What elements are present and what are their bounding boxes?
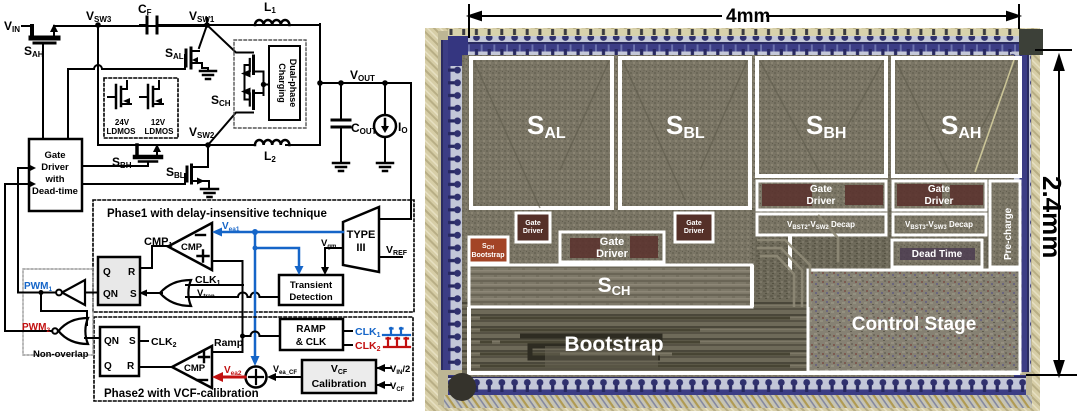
svg-text:Bootstrap: Bootstrap: [564, 333, 663, 356]
svg-text:Pre-charge: Pre-charge: [1003, 207, 1014, 260]
svg-text:S: S: [130, 289, 137, 300]
svg-text:Vgm: Vgm: [321, 238, 336, 250]
svg-text:CMP: CMP: [181, 242, 203, 253]
svg-text:Ramp: Ramp: [214, 337, 243, 349]
svg-text:SBH: SBH: [112, 155, 132, 170]
svg-text:LDMOS: LDMOS: [107, 127, 137, 136]
svg-text:PWM2: PWM2: [22, 322, 50, 334]
svg-text:QN: QN: [104, 336, 119, 347]
svg-text:Q: Q: [104, 361, 112, 372]
svg-text:VIN/2: VIN/2: [390, 364, 410, 376]
svg-text:Q: Q: [103, 267, 111, 278]
svg-text:& CLK: & CLK: [296, 337, 327, 348]
svg-text:Gate: Gate: [600, 236, 624, 248]
svg-text:Gate: Gate: [525, 220, 541, 227]
svg-text:Gate: Gate: [810, 184, 833, 195]
svg-text:Gate: Gate: [44, 150, 65, 161]
svg-text:SCH: SCH: [482, 243, 494, 251]
svg-text:VREF: VREF: [386, 244, 408, 257]
svg-text:IO: IO: [398, 120, 408, 135]
svg-text:L1: L1: [264, 0, 276, 15]
svg-text:Driver: Driver: [596, 248, 629, 260]
svg-text:Charging: Charging: [277, 63, 287, 103]
svg-text:Driver: Driver: [684, 228, 705, 235]
svg-text:Gate: Gate: [686, 220, 702, 227]
svg-text:QN: QN: [103, 289, 118, 300]
svg-text:SBL: SBL: [166, 165, 185, 180]
svg-text:LDMOS: LDMOS: [145, 127, 175, 136]
svg-text:Driver: Driver: [807, 196, 836, 207]
svg-text:PWM1: PWM1: [24, 281, 52, 293]
svg-text:VIN: VIN: [4, 19, 20, 34]
svg-text:SAL: SAL: [165, 46, 184, 61]
svg-text:Vea_CF: Vea_CF: [273, 364, 297, 376]
svg-text:L2: L2: [264, 149, 276, 164]
svg-text:TYPE: TYPE: [347, 229, 376, 241]
svg-text:VSW3: VSW3: [86, 9, 112, 24]
svg-text:VOUT: VOUT: [350, 68, 375, 83]
svg-text:Non-overlap: Non-overlap: [33, 349, 89, 360]
svg-text:SCH: SCH: [211, 93, 231, 108]
svg-text:VSW1: VSW1: [189, 9, 215, 24]
svg-text:Control Stage: Control Stage: [852, 314, 977, 335]
svg-text:Dead Time: Dead Time: [912, 249, 963, 260]
svg-text:CLK2: CLK2: [355, 340, 381, 353]
svg-text:Driver: Driver: [925, 196, 954, 207]
svg-text:2.4mm: 2.4mm: [1037, 176, 1067, 258]
svg-text:4mm: 4mm: [726, 6, 770, 27]
svg-text:R: R: [127, 361, 135, 372]
svg-text:CLK1: CLK1: [195, 274, 221, 287]
svg-text:Phase2 with VCF-calibration: Phase2 with VCF-calibration: [104, 388, 259, 400]
svg-text:COUT: COUT: [351, 121, 377, 136]
svg-text:CLK1: CLK1: [355, 326, 381, 339]
svg-text:VCF: VCF: [390, 381, 405, 393]
svg-text:CF: CF: [138, 2, 152, 17]
svg-text:Phase1 with delay-insensitive: Phase1 with delay-insensitive technique: [107, 208, 327, 220]
svg-text:R: R: [128, 267, 136, 278]
svg-text:CMP: CMP: [184, 363, 206, 374]
svg-text:CMP1: CMP1: [144, 236, 172, 249]
svg-text:12V: 12V: [151, 118, 166, 127]
svg-text:Vea1: Vea1: [222, 221, 240, 233]
svg-text:Dead-time: Dead-time: [32, 186, 78, 197]
svg-text:Vtran: Vtran: [197, 288, 215, 300]
svg-text:Driver: Driver: [523, 228, 544, 235]
svg-text:III: III: [356, 242, 365, 254]
svg-text:24V: 24V: [115, 118, 130, 127]
svg-text:Driver: Driver: [41, 162, 69, 173]
svg-text:Vea2: Vea2: [224, 365, 242, 377]
svg-text:VSW2: VSW2: [189, 125, 215, 140]
svg-text:with: with: [45, 174, 65, 185]
svg-text:Dual-phase: Dual-phase: [288, 59, 298, 108]
svg-text:SAH: SAH: [24, 44, 44, 59]
svg-text:S: S: [129, 336, 136, 347]
svg-text:Calibration: Calibration: [312, 378, 367, 390]
svg-text:Detection: Detection: [289, 292, 332, 303]
svg-text:Bootstrap: Bootstrap: [471, 252, 504, 259]
svg-text:CLK2: CLK2: [151, 336, 177, 349]
svg-text:Gate: Gate: [928, 184, 951, 195]
svg-text:RAMP: RAMP: [296, 324, 326, 335]
svg-text:Transient: Transient: [290, 280, 333, 291]
